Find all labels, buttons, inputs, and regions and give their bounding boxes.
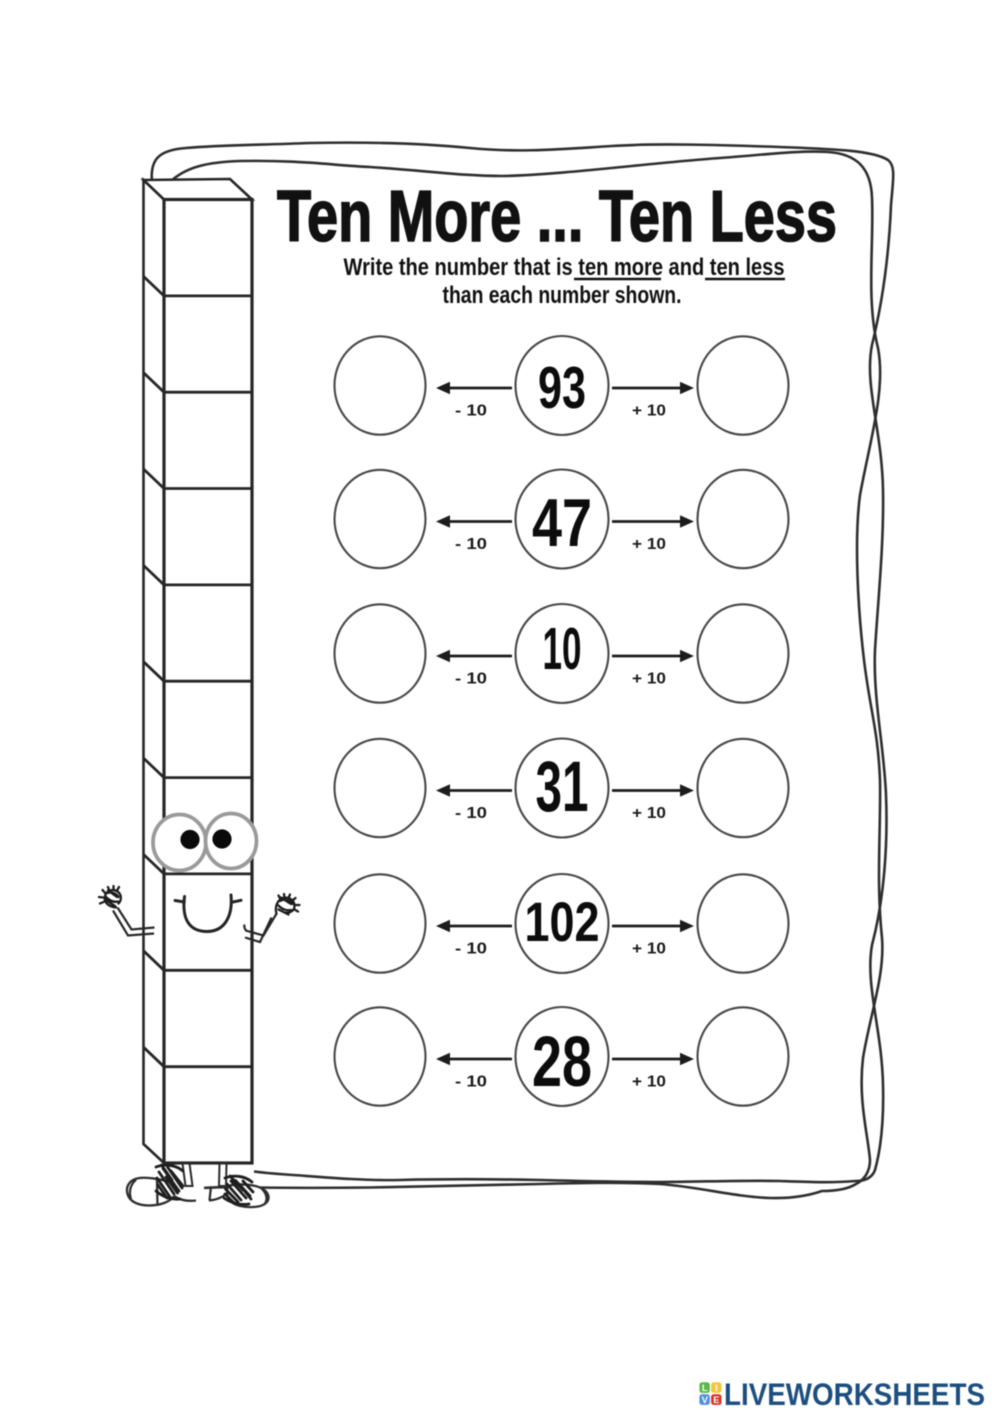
svg-text:LIVEWORKSHEETS: LIVEWORKSHEETS: [724, 1376, 985, 1412]
svg-text:V: V: [702, 1394, 709, 1405]
svg-text:102: 102: [525, 890, 600, 953]
svg-text:47: 47: [532, 485, 592, 561]
svg-text:+ 10: + 10: [632, 941, 666, 958]
svg-text:Write the number that is ten m: Write the number that is ten more and te…: [344, 254, 785, 281]
svg-text:+ 10: + 10: [632, 671, 666, 688]
svg-text:- 10: - 10: [455, 671, 487, 688]
svg-text:than each number shown.: than each number shown.: [443, 282, 682, 309]
svg-text:L: L: [702, 1382, 708, 1393]
svg-text:Ten More ... Ten Less: Ten More ... Ten Less: [277, 177, 837, 257]
svg-text:- 10: - 10: [455, 805, 487, 822]
svg-text:+ 10: + 10: [632, 403, 666, 420]
svg-text:- 10: - 10: [455, 941, 487, 958]
svg-text:10: 10: [543, 616, 582, 682]
svg-text:28: 28: [532, 1023, 592, 1102]
svg-text:+ 10: + 10: [632, 536, 666, 553]
svg-text:+ 10: + 10: [632, 805, 666, 822]
svg-text:31: 31: [536, 748, 589, 827]
svg-text:- 10: - 10: [455, 536, 487, 553]
svg-text:E: E: [713, 1394, 719, 1405]
svg-text:- 10: - 10: [455, 403, 487, 420]
svg-text:+ 10: + 10: [632, 1074, 666, 1091]
svg-text:I: I: [715, 1382, 718, 1393]
svg-text:- 10: - 10: [455, 1074, 487, 1091]
svg-text:93: 93: [538, 355, 586, 421]
